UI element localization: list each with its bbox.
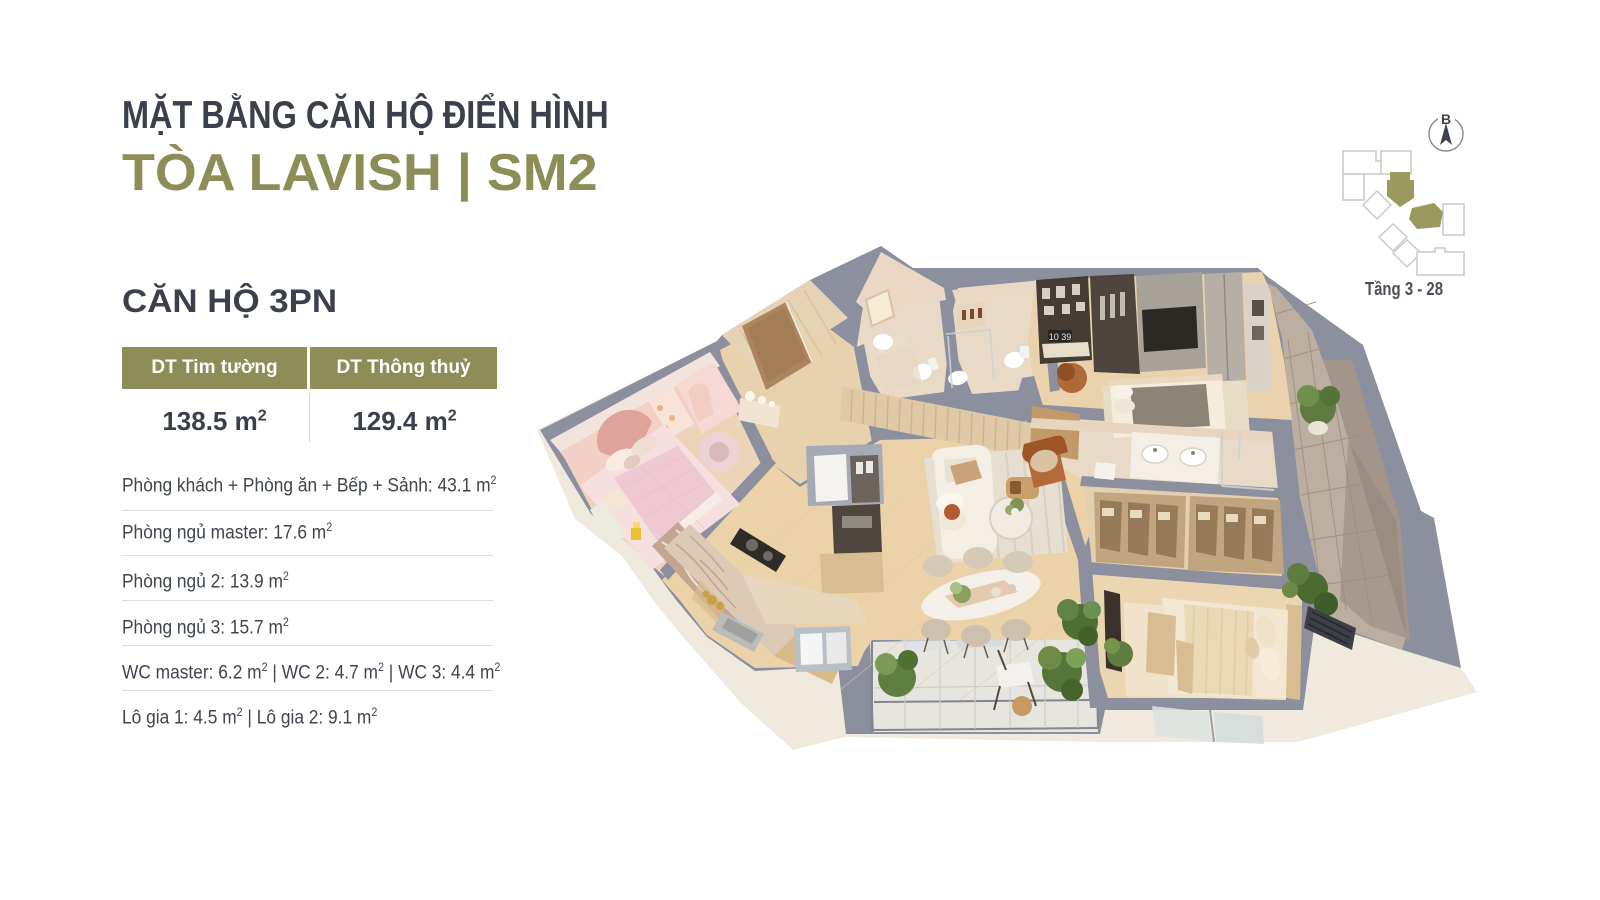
- svg-text:10 39: 10 39: [1049, 332, 1072, 342]
- svg-text:Tầng 3 - 28: Tầng 3 - 28: [1365, 279, 1443, 299]
